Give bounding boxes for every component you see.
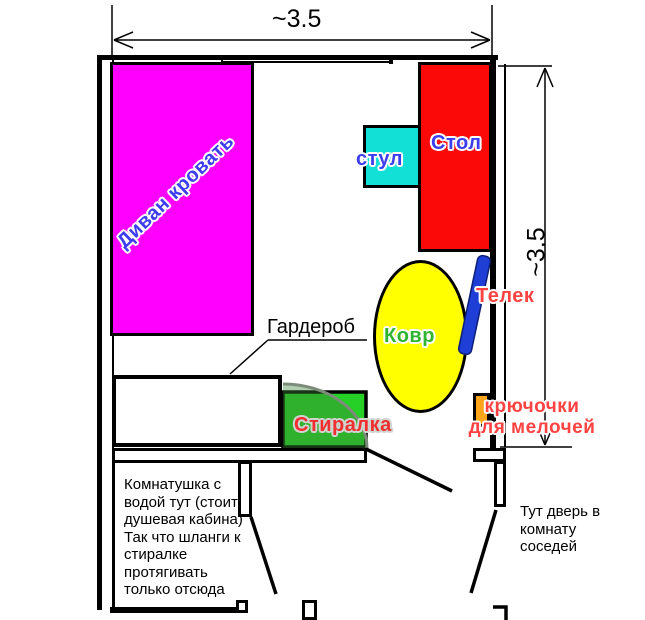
washer-label: Стиралка	[294, 414, 392, 437]
wall-inner-right	[504, 64, 506, 447]
wall-bathroom-left	[112, 463, 115, 608]
wall-corner-bottom-right	[493, 607, 506, 620]
table-label: Стол	[431, 132, 481, 155]
door-swing-bathroom	[251, 517, 276, 594]
wall-bathroom-bottom	[110, 607, 238, 613]
wardrobe	[112, 375, 282, 447]
wardrobe-leader-line	[230, 340, 367, 374]
tv-label: Телек	[476, 285, 534, 308]
carpet-label: Ковр	[384, 325, 435, 348]
dimension-height-label: ~3.5	[523, 227, 552, 276]
hooks-label: крючочки для мелочей	[467, 396, 597, 438]
door-jamb-neighbors	[494, 461, 506, 507]
wall-top	[97, 55, 498, 60]
floor-plan: ~3.5 ~3.5 Диван кровать стул Стол Ковр Т…	[0, 0, 645, 620]
door-jamb-bottom-middle	[302, 600, 317, 620]
door-swing-main	[366, 449, 452, 491]
wardrobe-label: Гардероб	[267, 316, 355, 339]
note-bathroom: Комнатушка с водой тут (стоит душевая ка…	[124, 476, 244, 599]
door-jamb-bathroom-bottom	[236, 600, 248, 613]
wall-left	[97, 55, 102, 610]
dimension-width-label: ~3.5	[272, 5, 321, 34]
door-swing-neighbors	[471, 510, 496, 593]
door-swing-lines	[251, 449, 506, 620]
table	[418, 62, 492, 252]
note-neighbors-door: Тут дверь в комнату соседей	[520, 503, 615, 556]
chair-label: стул	[356, 148, 403, 171]
wall-piece-right	[473, 448, 506, 462]
